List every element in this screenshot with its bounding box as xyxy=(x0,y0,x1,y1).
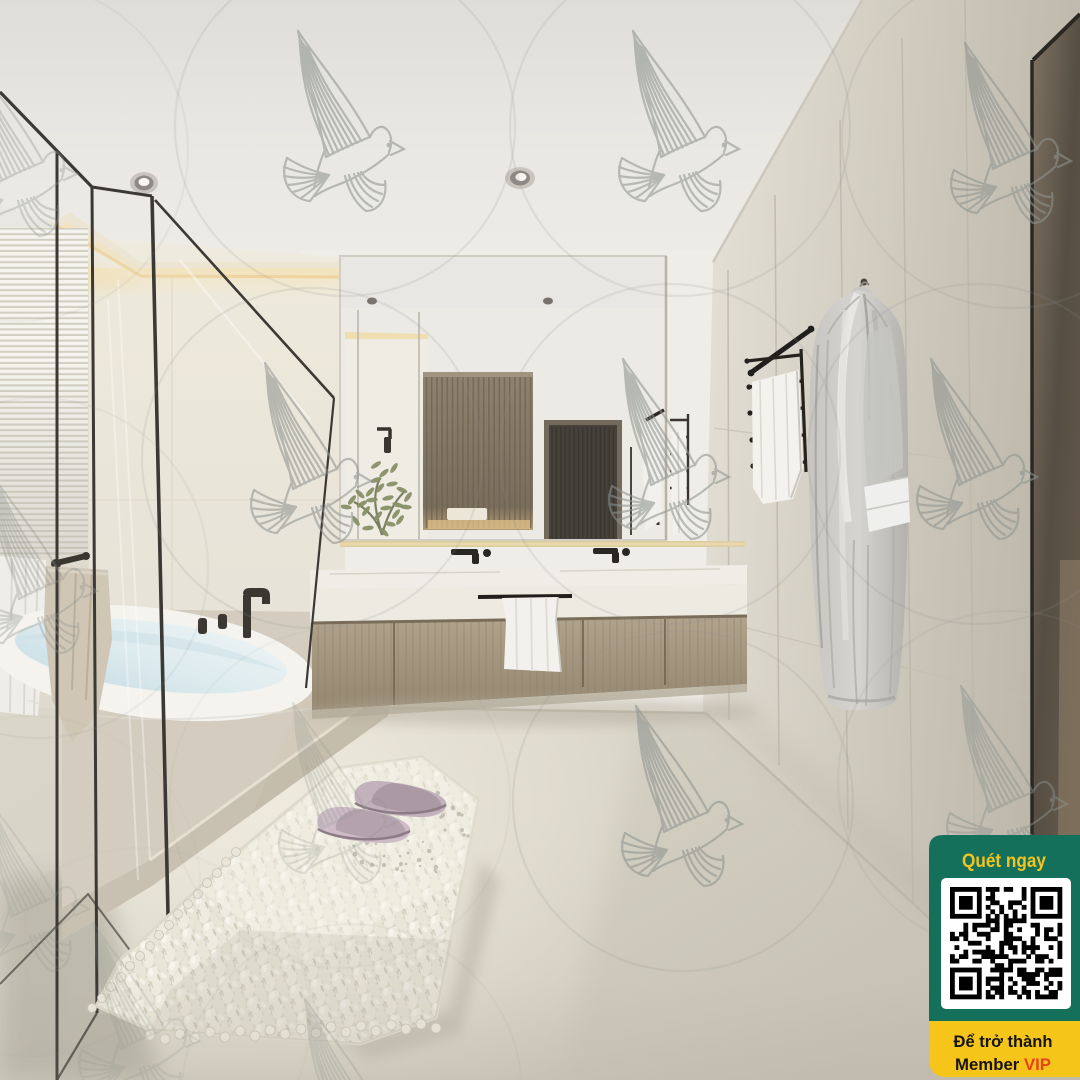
svg-text:Member VIP: Member VIP xyxy=(955,1055,1051,1074)
svg-text:Quét ngay: Quét ngay xyxy=(962,850,1046,872)
svg-text:Để trở thành: Để trở thành xyxy=(954,1032,1053,1051)
